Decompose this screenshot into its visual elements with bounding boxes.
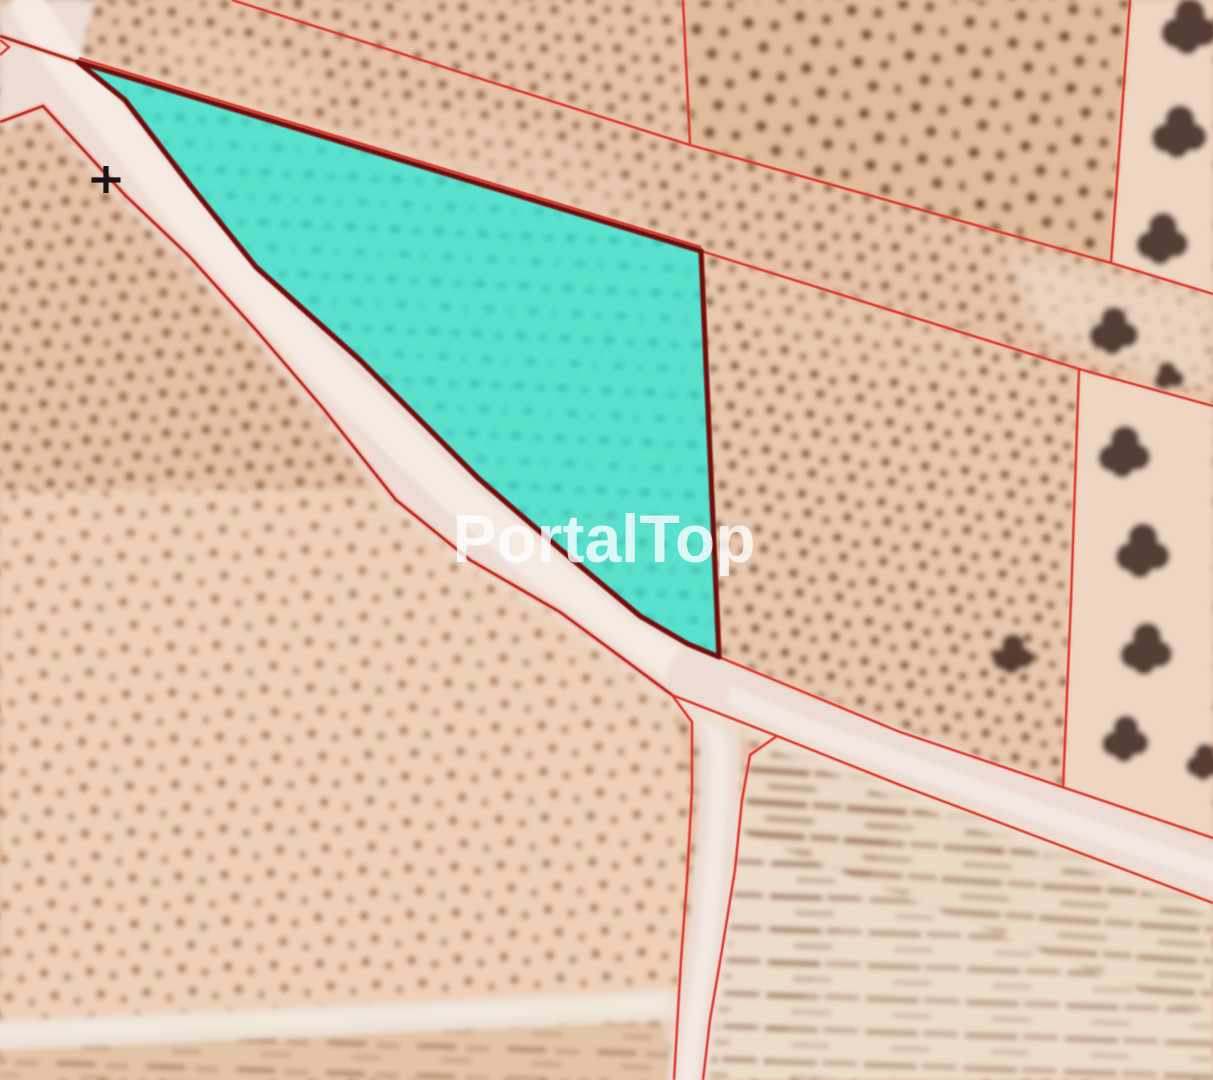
svg-text:PortalTop: PortalTop [453, 501, 756, 577]
